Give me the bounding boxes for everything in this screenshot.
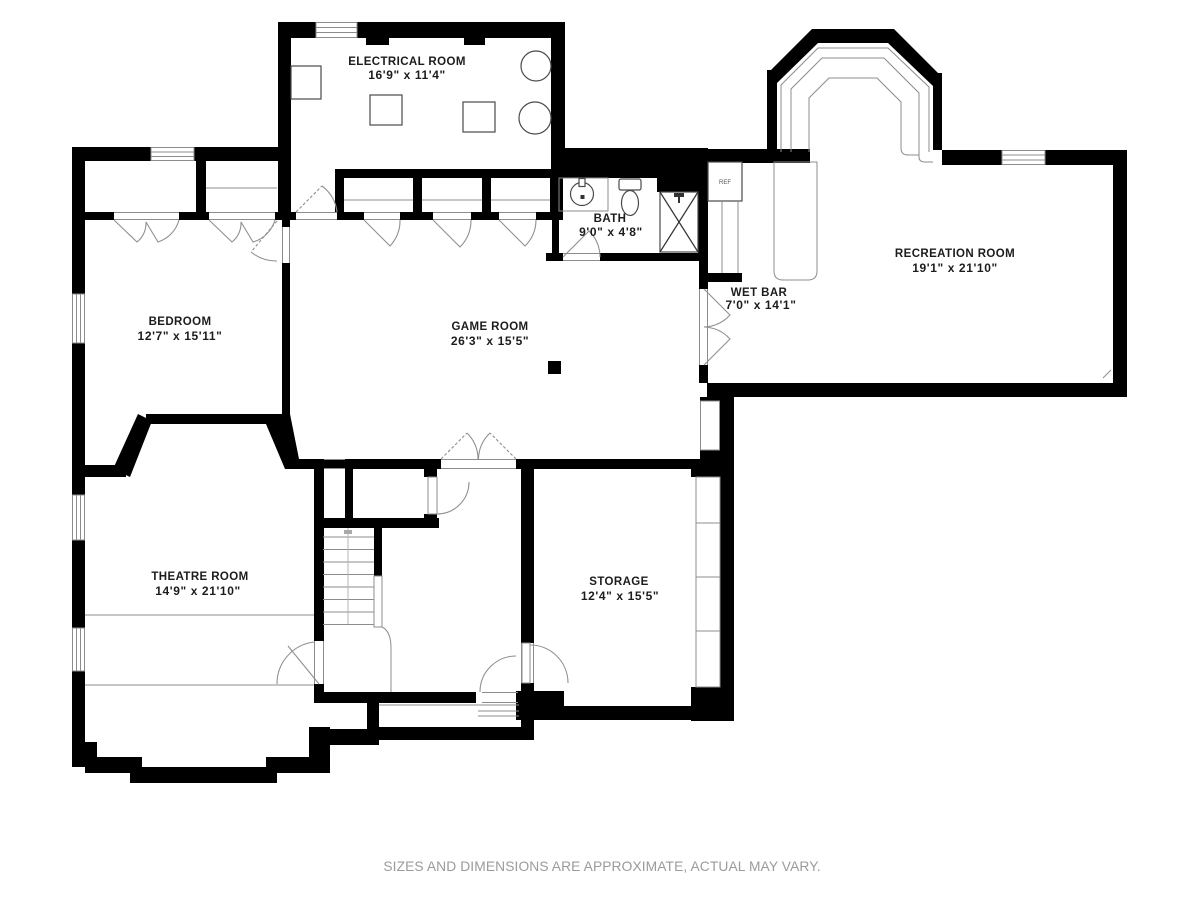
svg-text:STORAGE: STORAGE — [589, 576, 648, 588]
svg-text:RECREATION ROOM: RECREATION ROOM — [895, 248, 1015, 260]
svg-text:14'9" x 21'10": 14'9" x 21'10" — [155, 584, 241, 598]
svg-text:REF: REF — [719, 180, 731, 186]
svg-text:12'7" x 15'11": 12'7" x 15'11" — [138, 329, 223, 343]
svg-text:12'4" x 15'5": 12'4" x 15'5" — [581, 589, 659, 603]
svg-text:BATH: BATH — [594, 213, 627, 225]
svg-text:7'0" x 14'1": 7'0" x 14'1" — [726, 298, 797, 312]
svg-text:19'1" x 21'10": 19'1" x 21'10" — [912, 261, 998, 275]
svg-text:BEDROOM: BEDROOM — [149, 316, 212, 328]
svg-text:26'3" x 15'5": 26'3" x 15'5" — [451, 334, 529, 348]
svg-text:THEATRE ROOM: THEATRE ROOM — [151, 571, 248, 583]
svg-text:9'0" x 4'8": 9'0" x 4'8" — [579, 225, 643, 239]
svg-text:ELECTRICAL ROOM: ELECTRICAL ROOM — [348, 56, 466, 68]
svg-text:GAME ROOM: GAME ROOM — [451, 321, 528, 333]
svg-text:SIZES AND DIMENSIONS ARE APPRO: SIZES AND DIMENSIONS ARE APPROXIMATE, AC… — [383, 859, 820, 874]
svg-text:16'9" x 11'4": 16'9" x 11'4" — [368, 68, 446, 82]
